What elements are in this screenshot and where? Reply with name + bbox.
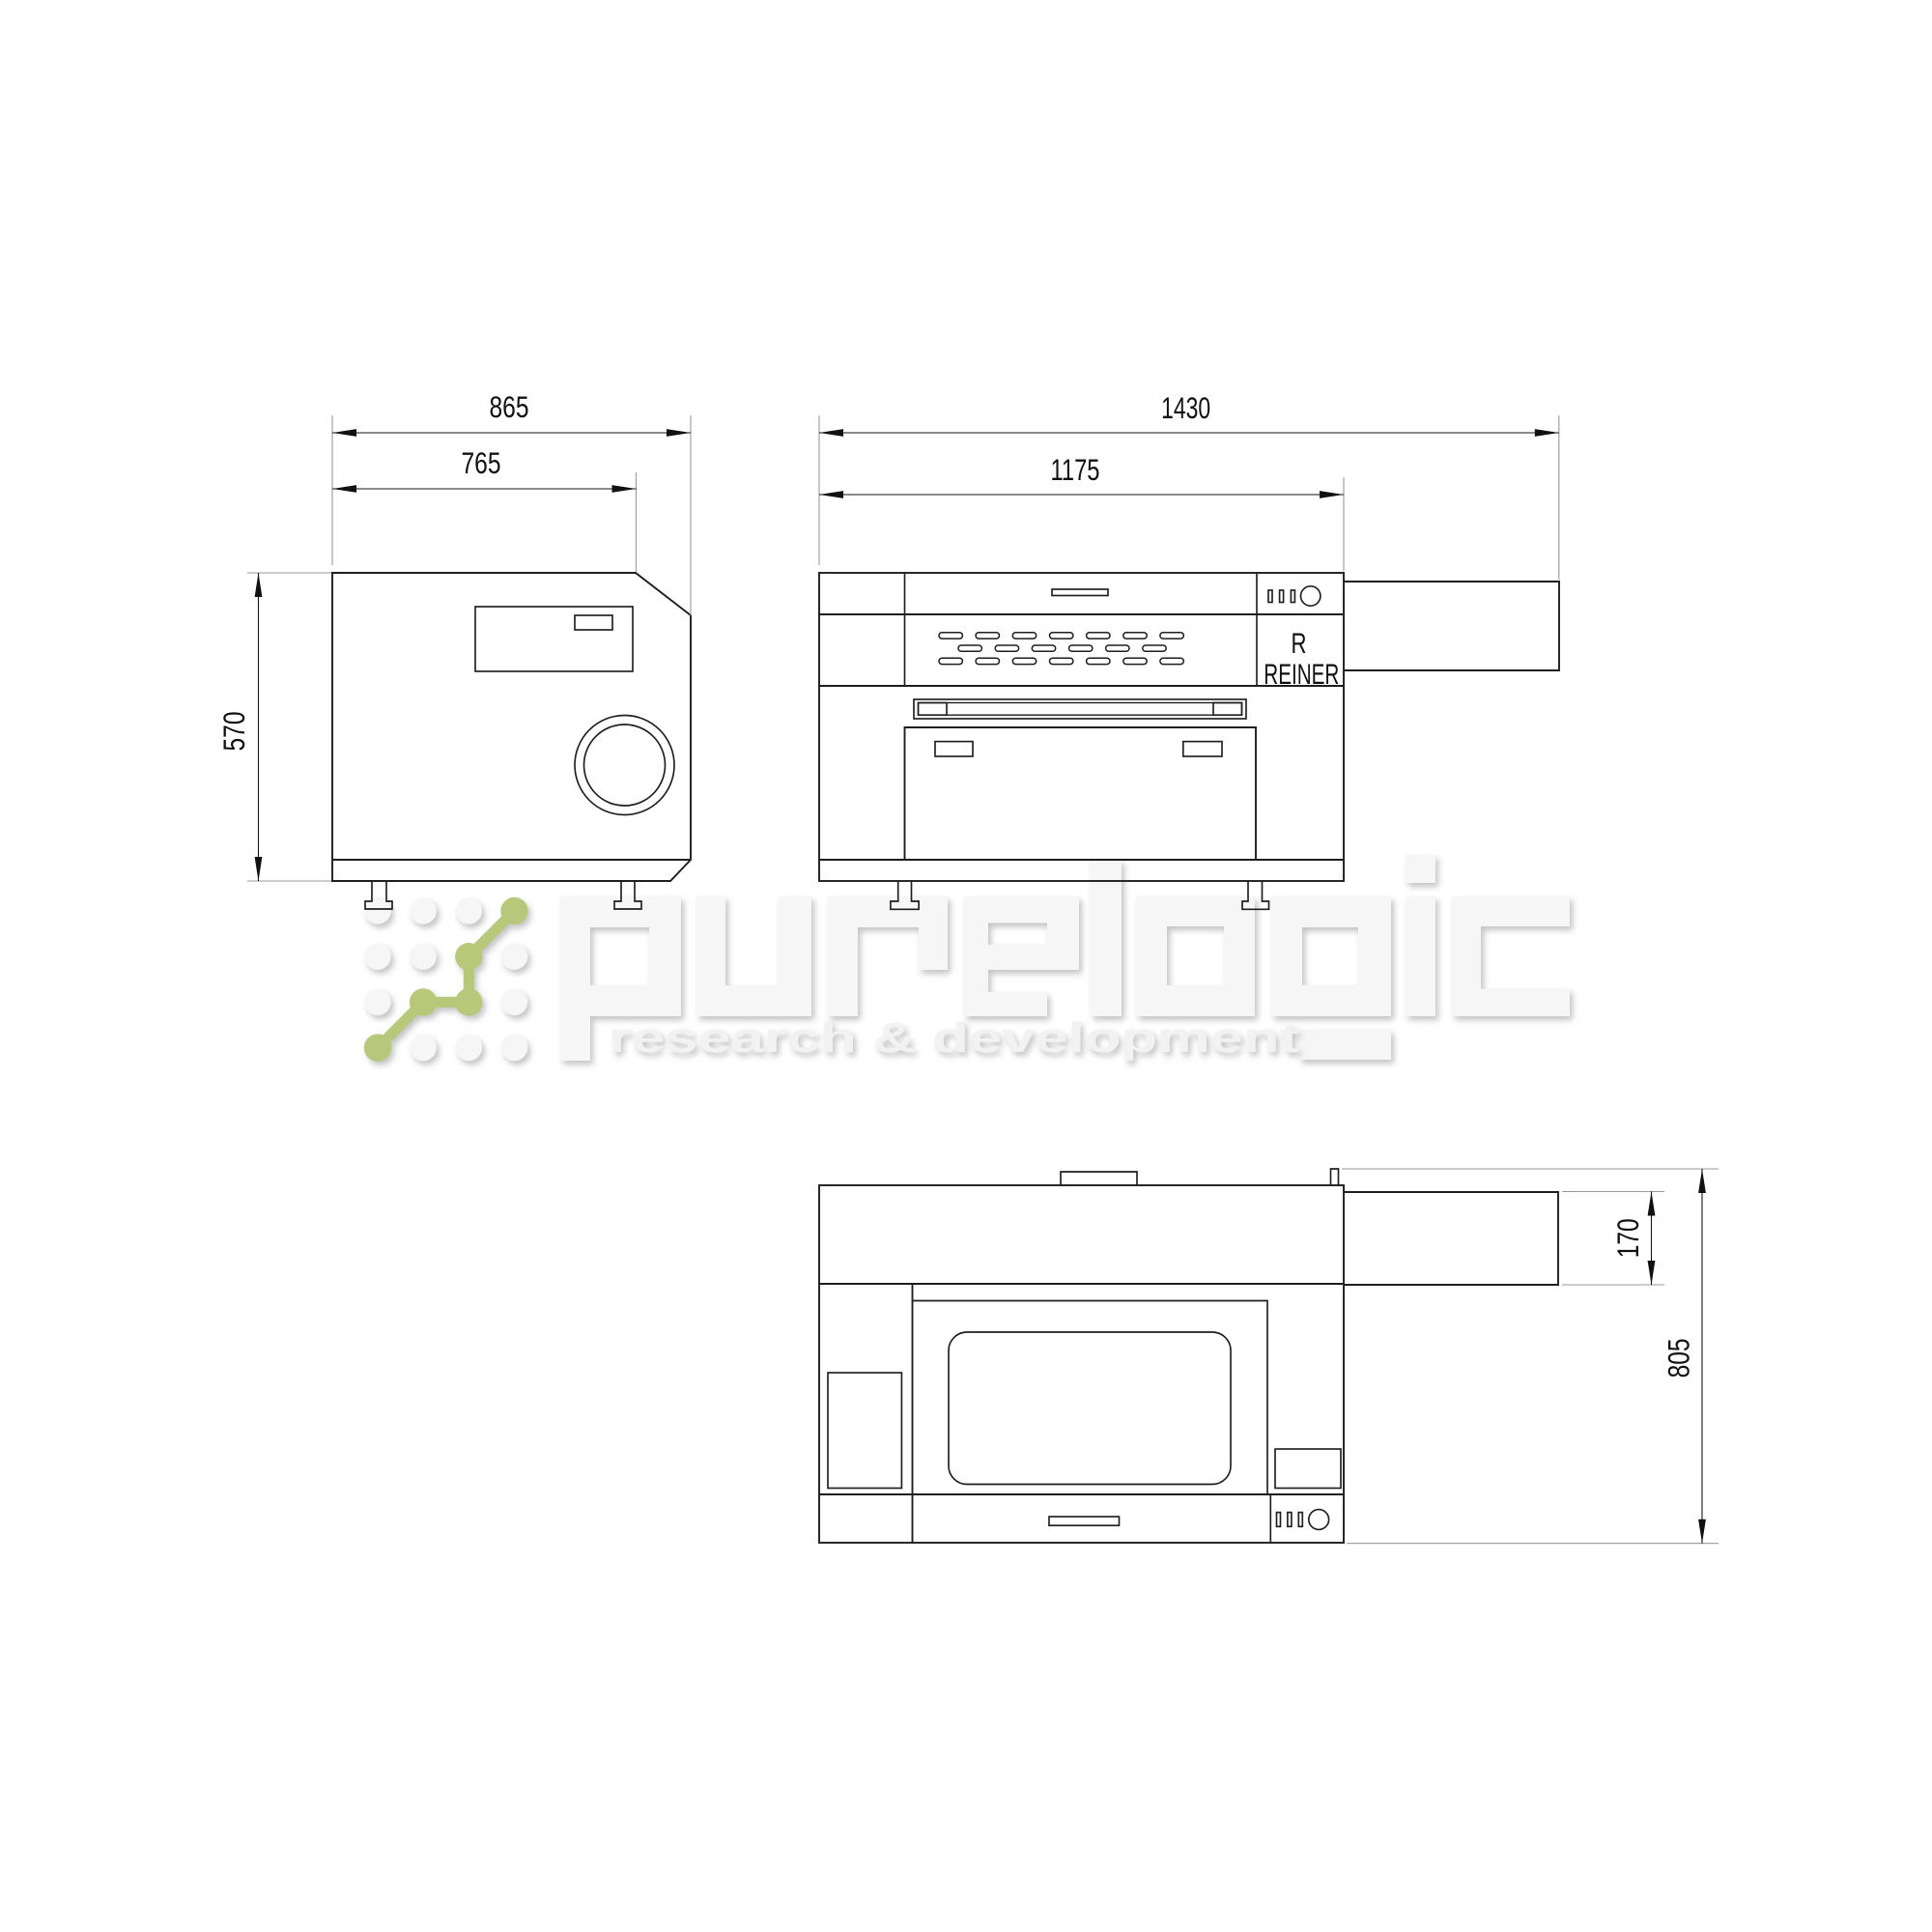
svg-text:170: 170 bbox=[1610, 1218, 1645, 1258]
svg-text:865: 865 bbox=[490, 389, 529, 424]
svg-text:805: 805 bbox=[1662, 1338, 1696, 1378]
svg-text:research & development: research & development bbox=[609, 1014, 1299, 1062]
svg-text:570: 570 bbox=[216, 712, 251, 752]
svg-text:1175: 1175 bbox=[1051, 452, 1100, 487]
svg-text:1430: 1430 bbox=[1161, 390, 1210, 425]
svg-text:REINER: REINER bbox=[1264, 659, 1339, 691]
svg-text:765: 765 bbox=[462, 445, 501, 480]
svg-text:R: R bbox=[1292, 628, 1307, 660]
